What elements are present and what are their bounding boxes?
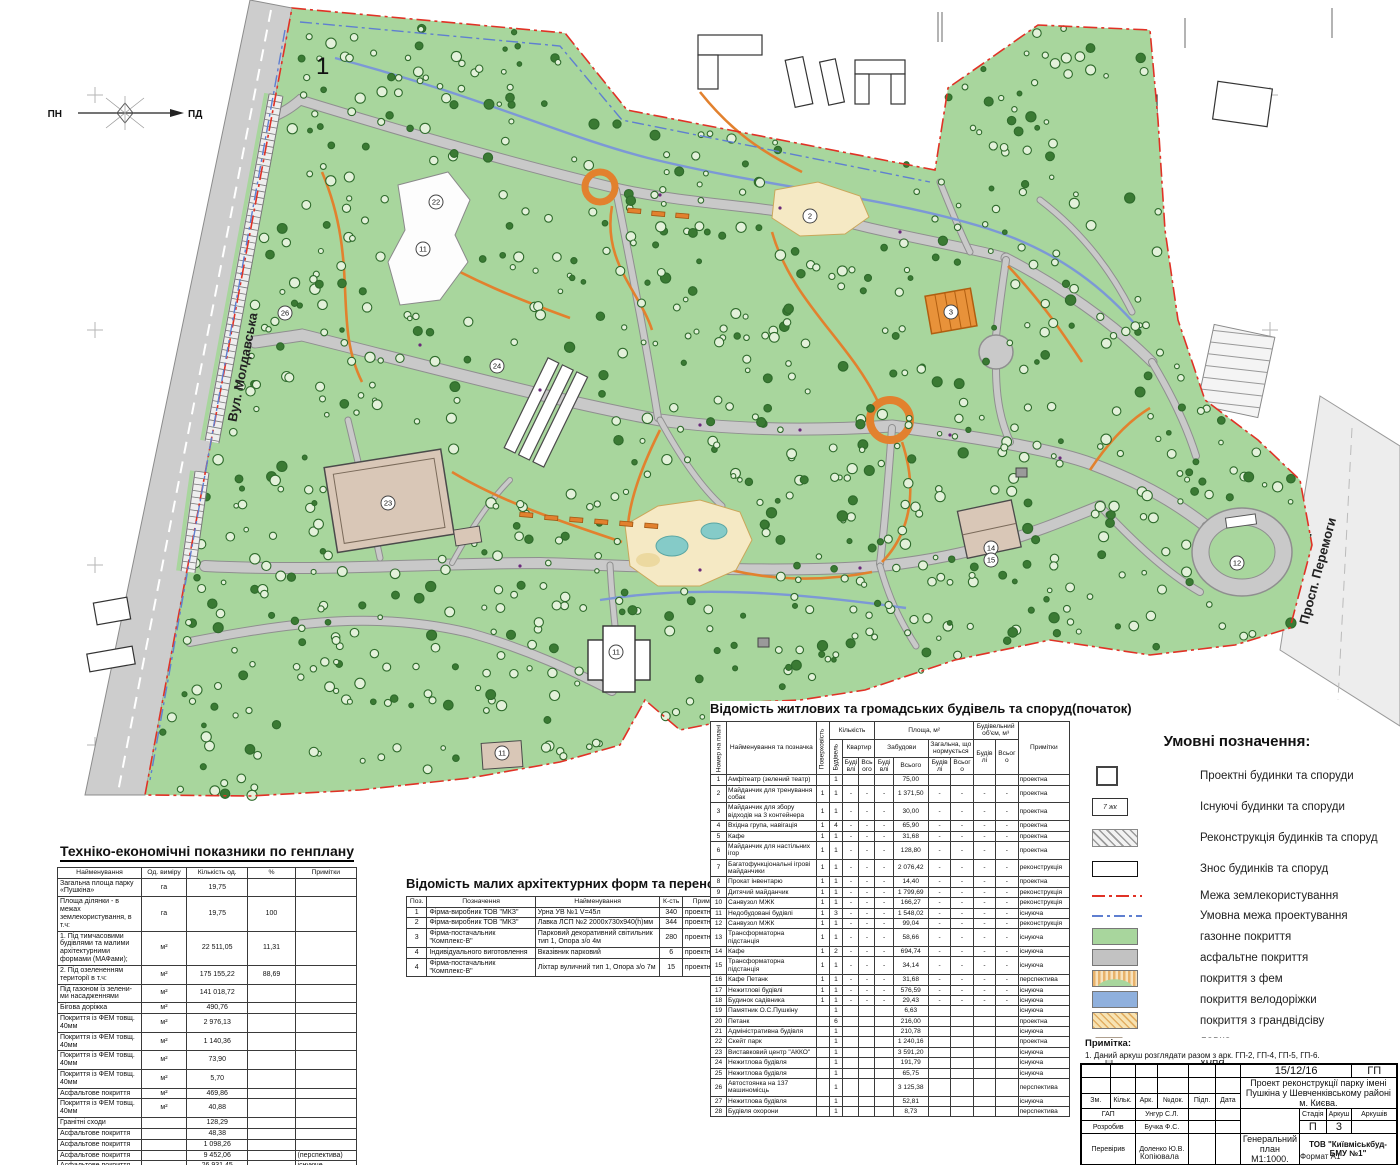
tree <box>450 150 458 158</box>
buildings-table-cell: - <box>928 918 950 928</box>
buildings-table-cell: - <box>951 841 973 859</box>
tree <box>1185 477 1190 482</box>
tree <box>318 300 328 310</box>
buildings-table-cell <box>973 1058 995 1068</box>
tree <box>1007 486 1017 496</box>
tree <box>318 249 323 254</box>
tree <box>511 591 518 598</box>
tree <box>362 217 369 224</box>
tech-table-cell <box>248 1161 295 1165</box>
tree <box>464 356 471 363</box>
tree <box>741 613 746 618</box>
tree <box>517 581 525 589</box>
tree <box>513 523 520 530</box>
buildings-table-cell: - <box>928 947 950 957</box>
tech-table-row: Асфальтове покриття26 931,45існуюче <box>58 1161 357 1165</box>
col-header: % <box>248 868 295 879</box>
tree <box>686 698 693 705</box>
col-header: Квартир <box>843 739 875 757</box>
tree <box>450 382 460 392</box>
tree <box>359 288 366 295</box>
tb-row: Перевірив Доленко Ю.В. Генеральний план … <box>1081 1134 1397 1165</box>
buildings-table-cell: - <box>996 908 1018 918</box>
buildings-table-cell: - <box>843 918 859 928</box>
tree <box>565 342 575 352</box>
tree <box>1182 567 1192 577</box>
buildings-table-cell: 8,73 <box>893 1107 928 1117</box>
tree <box>486 690 496 700</box>
tree <box>1131 322 1140 331</box>
tree <box>307 171 313 177</box>
buildings-table-cell: Дитячий майданчик <box>727 887 817 897</box>
tree <box>1029 260 1038 269</box>
plan-number-label: 12 <box>1233 559 1241 568</box>
tree <box>420 123 430 133</box>
maf-header-row: Поз. Позначення Найменування К-сть Примі… <box>407 897 732 908</box>
buildings-table-cell <box>843 1027 859 1037</box>
buildings-table-cell: 22 <box>711 1037 727 1047</box>
legend-item: Знос будинків та споруд <box>1092 857 1382 881</box>
buildings-table-cell: 75,00 <box>893 775 928 785</box>
bench <box>620 521 633 527</box>
tree <box>395 89 403 97</box>
tech-table-cell <box>295 1139 356 1150</box>
tree <box>938 179 944 185</box>
tree <box>262 561 271 570</box>
tree <box>1177 471 1183 477</box>
tree <box>326 176 336 186</box>
tree <box>895 443 900 448</box>
plan-number-label: 2 <box>808 212 812 221</box>
tree <box>317 124 323 130</box>
tree <box>476 65 483 72</box>
buildings-table-cell: - <box>843 898 859 908</box>
tree <box>779 684 785 690</box>
buildings-table-row: 11Недобудовані будівлі13---1 548,02----і… <box>711 908 1070 918</box>
tree <box>1156 436 1161 441</box>
tree <box>769 332 779 342</box>
buildings-table-cell: 6 <box>711 841 727 859</box>
tree <box>856 420 865 429</box>
buildings-table-cell: 1 <box>829 1078 843 1096</box>
tree <box>235 475 243 483</box>
tree <box>328 142 335 149</box>
buildings-table-cell: 7 <box>711 859 727 877</box>
tree <box>415 42 423 50</box>
tree <box>271 317 279 325</box>
buildings-table-cell: Вхідна група, навігація <box>727 821 817 831</box>
tree <box>497 701 507 711</box>
tree <box>1152 247 1162 257</box>
tree <box>884 535 892 543</box>
tree <box>550 644 559 653</box>
tree <box>413 327 422 336</box>
tree <box>302 455 307 460</box>
legend-item: покриття з фем <box>1092 970 1382 987</box>
registration-cross <box>87 557 103 573</box>
buildings-table-cell: 1 <box>829 957 843 975</box>
buildings-table-cell: існуюча <box>1018 947 1069 957</box>
tree <box>304 75 310 81</box>
tree <box>316 382 325 391</box>
tree <box>246 387 255 396</box>
tree <box>900 539 910 549</box>
tree <box>1219 440 1224 445</box>
buildings-table-cell: - <box>928 821 950 831</box>
tree <box>651 191 658 198</box>
tree <box>548 668 557 677</box>
tree <box>908 455 916 463</box>
tree <box>261 590 269 598</box>
buildings-table-cell: - <box>875 929 893 947</box>
buildings-table-cell <box>928 1027 950 1037</box>
buildings-table-cell: 52,81 <box>893 1096 928 1106</box>
tree <box>391 695 398 702</box>
tree <box>553 253 562 262</box>
tree <box>662 455 672 465</box>
tree <box>1162 548 1170 556</box>
buildings-table-cell: - <box>859 947 875 957</box>
buildings-table-cell <box>928 1058 950 1068</box>
tree <box>954 651 962 659</box>
tree <box>595 553 602 560</box>
buildings-table-cell: перспектива <box>1018 975 1069 985</box>
tree <box>287 573 295 581</box>
tech-table-cell <box>295 1003 356 1014</box>
context-building <box>1213 81 1273 126</box>
tree <box>453 755 460 762</box>
tree <box>714 648 720 654</box>
buildings-table-cell: - <box>973 918 995 928</box>
tree <box>866 612 872 618</box>
tree <box>1107 511 1115 519</box>
buildings-table-cell: - <box>996 859 1018 877</box>
tech-table-row: Покриття із ФЕМ товщ. 40ммм²2 976,13 <box>58 1014 357 1033</box>
tree <box>1069 323 1074 328</box>
buildings-table-cell: - <box>996 985 1018 995</box>
tree <box>269 612 275 618</box>
tree <box>838 283 845 290</box>
buildings-table-cell: 128,80 <box>893 841 928 859</box>
buildings-table-cell <box>859 1096 875 1106</box>
tree <box>1066 583 1075 592</box>
buildings-table-cell: - <box>996 821 1018 831</box>
tree <box>454 397 460 403</box>
buildings-table-cell <box>996 1096 1018 1106</box>
tree <box>681 588 688 595</box>
fem-symbol <box>1092 970 1138 987</box>
legend-label: асфальтне покриття <box>1200 952 1308 964</box>
tree <box>493 503 499 509</box>
tech-table-cell <box>248 1128 295 1139</box>
buildings-table-cell: - <box>859 918 875 928</box>
tech-table-cell <box>141 1139 186 1150</box>
tree <box>831 566 838 573</box>
legend-label: Проектні будинки та споруди <box>1200 770 1354 782</box>
tech-table-row: 2. Під озелененням території в т.ч:м²175… <box>58 965 357 984</box>
buildings-table-cell <box>996 1078 1018 1096</box>
tech-table-cell: 48,38 <box>187 1128 248 1139</box>
buildings-table-cell: 1 <box>829 985 843 995</box>
buildings-table-cell <box>816 1027 829 1037</box>
tb-sheet: 3 <box>1326 1121 1352 1134</box>
legend-label: покриття з грандвідсіву <box>1200 1015 1324 1027</box>
tech-table-cell: Асфальтове покриття <box>58 1088 142 1099</box>
buildings-table-cell: - <box>875 957 893 975</box>
col-header: Будівлі <box>928 757 950 775</box>
buildings-table-row: 28Будівля охорони18,73перспектива <box>711 1107 1070 1117</box>
tree <box>541 743 550 752</box>
tree <box>285 373 294 382</box>
tree <box>320 486 326 492</box>
tree <box>616 266 625 275</box>
tree <box>1144 372 1152 380</box>
legend-label: Межа землекористування <box>1200 890 1338 902</box>
tree <box>983 358 990 365</box>
tree <box>954 224 960 230</box>
tree <box>1024 499 1032 507</box>
buildings-table-cell <box>973 775 995 785</box>
tree <box>878 460 884 466</box>
tree <box>342 204 350 212</box>
buildings-table-cell <box>859 1058 875 1068</box>
buildings-table-cell: - <box>859 929 875 947</box>
tree <box>905 422 912 429</box>
buildings-table-cell: Кафе <box>727 831 817 841</box>
legend-item: Проектні будинки та споруди <box>1092 764 1382 788</box>
buildings-table-cell: 15 <box>711 957 727 975</box>
tree <box>442 94 451 103</box>
buildings-table-cell: 1 <box>829 929 843 947</box>
tree <box>254 406 259 411</box>
tree <box>298 674 304 680</box>
buildings-table-cell: 1 <box>816 859 829 877</box>
buildings-table-cell <box>928 1107 950 1117</box>
tree <box>932 254 939 261</box>
buildings-table-cell: Нежитлова будівля <box>727 1068 817 1078</box>
lamp-post <box>948 433 951 436</box>
tree <box>641 340 646 345</box>
buildings-table-cell: - <box>859 995 875 1005</box>
tree <box>1025 323 1030 328</box>
tech-table-cell: 9 452,06 <box>187 1150 248 1161</box>
buildings-table-cell: Будівля охорони <box>727 1107 817 1117</box>
context-building <box>855 60 905 74</box>
unfinished-building-11 <box>603 626 635 692</box>
tree <box>757 418 766 427</box>
tree <box>441 746 446 751</box>
tree <box>1061 53 1071 63</box>
buildings-table-cell <box>859 775 875 785</box>
buildings-table-cell: Скейт парк <box>727 1037 817 1047</box>
maf-table-cell: 1 <box>407 907 427 918</box>
tree <box>715 338 724 347</box>
tech-table-cell: 11,31 <box>248 931 295 965</box>
tree <box>1186 579 1193 586</box>
tree <box>947 621 952 626</box>
tech-table-cell: 5,70 <box>187 1070 248 1089</box>
buildings-table-cell: - <box>951 975 973 985</box>
tree <box>298 55 305 62</box>
lamp-post <box>698 568 701 571</box>
tree <box>762 332 769 339</box>
tree <box>704 605 713 614</box>
tree <box>388 73 395 80</box>
tree <box>743 355 751 363</box>
buildings-table-cell <box>859 1107 875 1117</box>
tree <box>1022 181 1029 188</box>
tree <box>778 427 784 433</box>
tree <box>775 498 780 503</box>
buildings-table-cell <box>875 1068 893 1078</box>
tree <box>1099 532 1109 542</box>
tree <box>1140 68 1148 76</box>
tree <box>533 268 538 273</box>
tree <box>738 478 743 483</box>
tree <box>947 579 953 585</box>
buildings-table-cell <box>859 1078 875 1096</box>
col-header: Поверховість <box>816 722 829 775</box>
buildings-table-cell: - <box>973 898 995 908</box>
redline-swatch <box>1092 895 1200 897</box>
tree <box>320 396 326 402</box>
tree <box>550 691 560 701</box>
tree <box>900 239 909 248</box>
tree <box>864 466 874 476</box>
tree <box>792 660 802 670</box>
tree <box>665 626 675 636</box>
tech-table-cell: 26 931,45 <box>187 1161 248 1165</box>
tree <box>355 678 365 688</box>
playground-pond <box>656 536 688 556</box>
buildings-table-cell: - <box>951 859 973 877</box>
tree <box>1024 404 1031 411</box>
tree <box>323 222 330 229</box>
maf-table-cell: Фірма-постачальник "Комплекс-В" <box>427 958 535 977</box>
buildings-table-cell: 10 <box>711 898 727 908</box>
tree <box>254 751 262 759</box>
buildings-table-cell: - <box>928 859 950 877</box>
plan-number-label: 3 <box>949 308 953 317</box>
buildings-table-cell <box>816 1037 829 1047</box>
tree <box>560 753 567 760</box>
legend-item: газонне покриття <box>1092 928 1382 945</box>
tree <box>378 358 383 363</box>
tree <box>571 258 577 264</box>
tree <box>459 60 465 66</box>
tech-table-cell: 1 098,26 <box>187 1139 248 1150</box>
tree <box>745 368 750 373</box>
tree <box>334 659 339 664</box>
tree <box>299 639 306 646</box>
tree <box>603 247 610 254</box>
buildings-table-cell <box>951 1058 973 1068</box>
context-building <box>855 74 869 104</box>
tree <box>698 198 704 204</box>
tree <box>881 244 888 251</box>
tree <box>599 371 608 380</box>
bench <box>545 515 558 521</box>
tb-name: Унгур С.Л. <box>1135 1109 1189 1121</box>
buildings-table-cell: 1 <box>829 918 843 928</box>
tech-table-cell: м² <box>141 1014 186 1033</box>
tree <box>969 572 975 578</box>
buildings-table-cell: реконструкція <box>1018 918 1069 928</box>
tree <box>446 413 456 423</box>
tech-table-cell <box>248 1014 295 1033</box>
tree <box>484 99 494 109</box>
tree <box>479 256 486 263</box>
tech-header-row: Найменування Од. виміру Кількість од. % … <box>58 868 357 879</box>
tree <box>714 396 722 404</box>
tree <box>308 128 313 133</box>
buildings-table-row: 10Санвузол МЖК11---166,27----реконструкц… <box>711 898 1070 908</box>
tb-col: Арк. <box>1135 1093 1158 1109</box>
tree <box>665 612 674 621</box>
tree <box>860 288 866 294</box>
tree <box>797 270 805 278</box>
tree <box>1017 91 1022 96</box>
tree <box>1199 478 1206 485</box>
tech-table-cell <box>295 1099 356 1118</box>
tree <box>515 532 524 541</box>
tree <box>833 652 839 658</box>
tree <box>1110 333 1116 339</box>
tree <box>450 101 458 109</box>
tb-row: ГАП Унгур С.Л. Стадія Аркуш Аркушів <box>1081 1109 1397 1121</box>
note-panel: Примітка: 1. Даний аркуш розглядати разо… <box>1085 1038 1385 1060</box>
tree <box>908 276 913 281</box>
tree <box>437 84 443 90</box>
tree <box>300 92 306 98</box>
tree <box>1075 52 1085 62</box>
tech-table-cell <box>295 1128 356 1139</box>
maf-table-title: Відомість малих архітектурних форм та пе… <box>406 876 732 891</box>
buildings-table-cell <box>859 1047 875 1057</box>
buildings-table-cell: - <box>996 831 1018 841</box>
tree <box>743 314 748 319</box>
tree <box>865 274 872 281</box>
tree <box>970 563 978 571</box>
buildings-table-cell: проектна <box>1018 785 1069 803</box>
tech-table-cell: м² <box>141 1070 186 1089</box>
tree <box>762 529 770 537</box>
buildings-table-row: 26Автостоянка на 137 машиномісць13 125,3… <box>711 1078 1070 1096</box>
buildings-table-cell: - <box>875 985 893 995</box>
buildings-table-cell: 1 <box>816 957 829 975</box>
buildings-table-cell: 34,14 <box>893 957 928 975</box>
tree <box>189 698 195 704</box>
tech-table-cell: га <box>141 878 186 897</box>
tree <box>914 189 920 195</box>
maf-table-cell: 4 <box>407 958 427 977</box>
tree <box>816 554 821 559</box>
buildings-table-cell: - <box>843 947 859 957</box>
tree <box>981 67 986 72</box>
tree <box>685 457 691 463</box>
maf-table-cell: 344 <box>660 918 682 929</box>
col-header: Поз. <box>407 897 427 908</box>
buildings-table-cell <box>951 1027 973 1037</box>
tree <box>618 348 628 358</box>
tree <box>215 683 222 690</box>
buildings-table-row: 9Дитячий майданчик11---1 799,69----рекон… <box>711 887 1070 897</box>
tree <box>1104 74 1109 79</box>
tree <box>922 648 931 657</box>
tree <box>689 229 698 238</box>
buildings-panel: Відомість житлових та громадських будіве… <box>710 701 1070 1117</box>
tree <box>575 681 580 686</box>
